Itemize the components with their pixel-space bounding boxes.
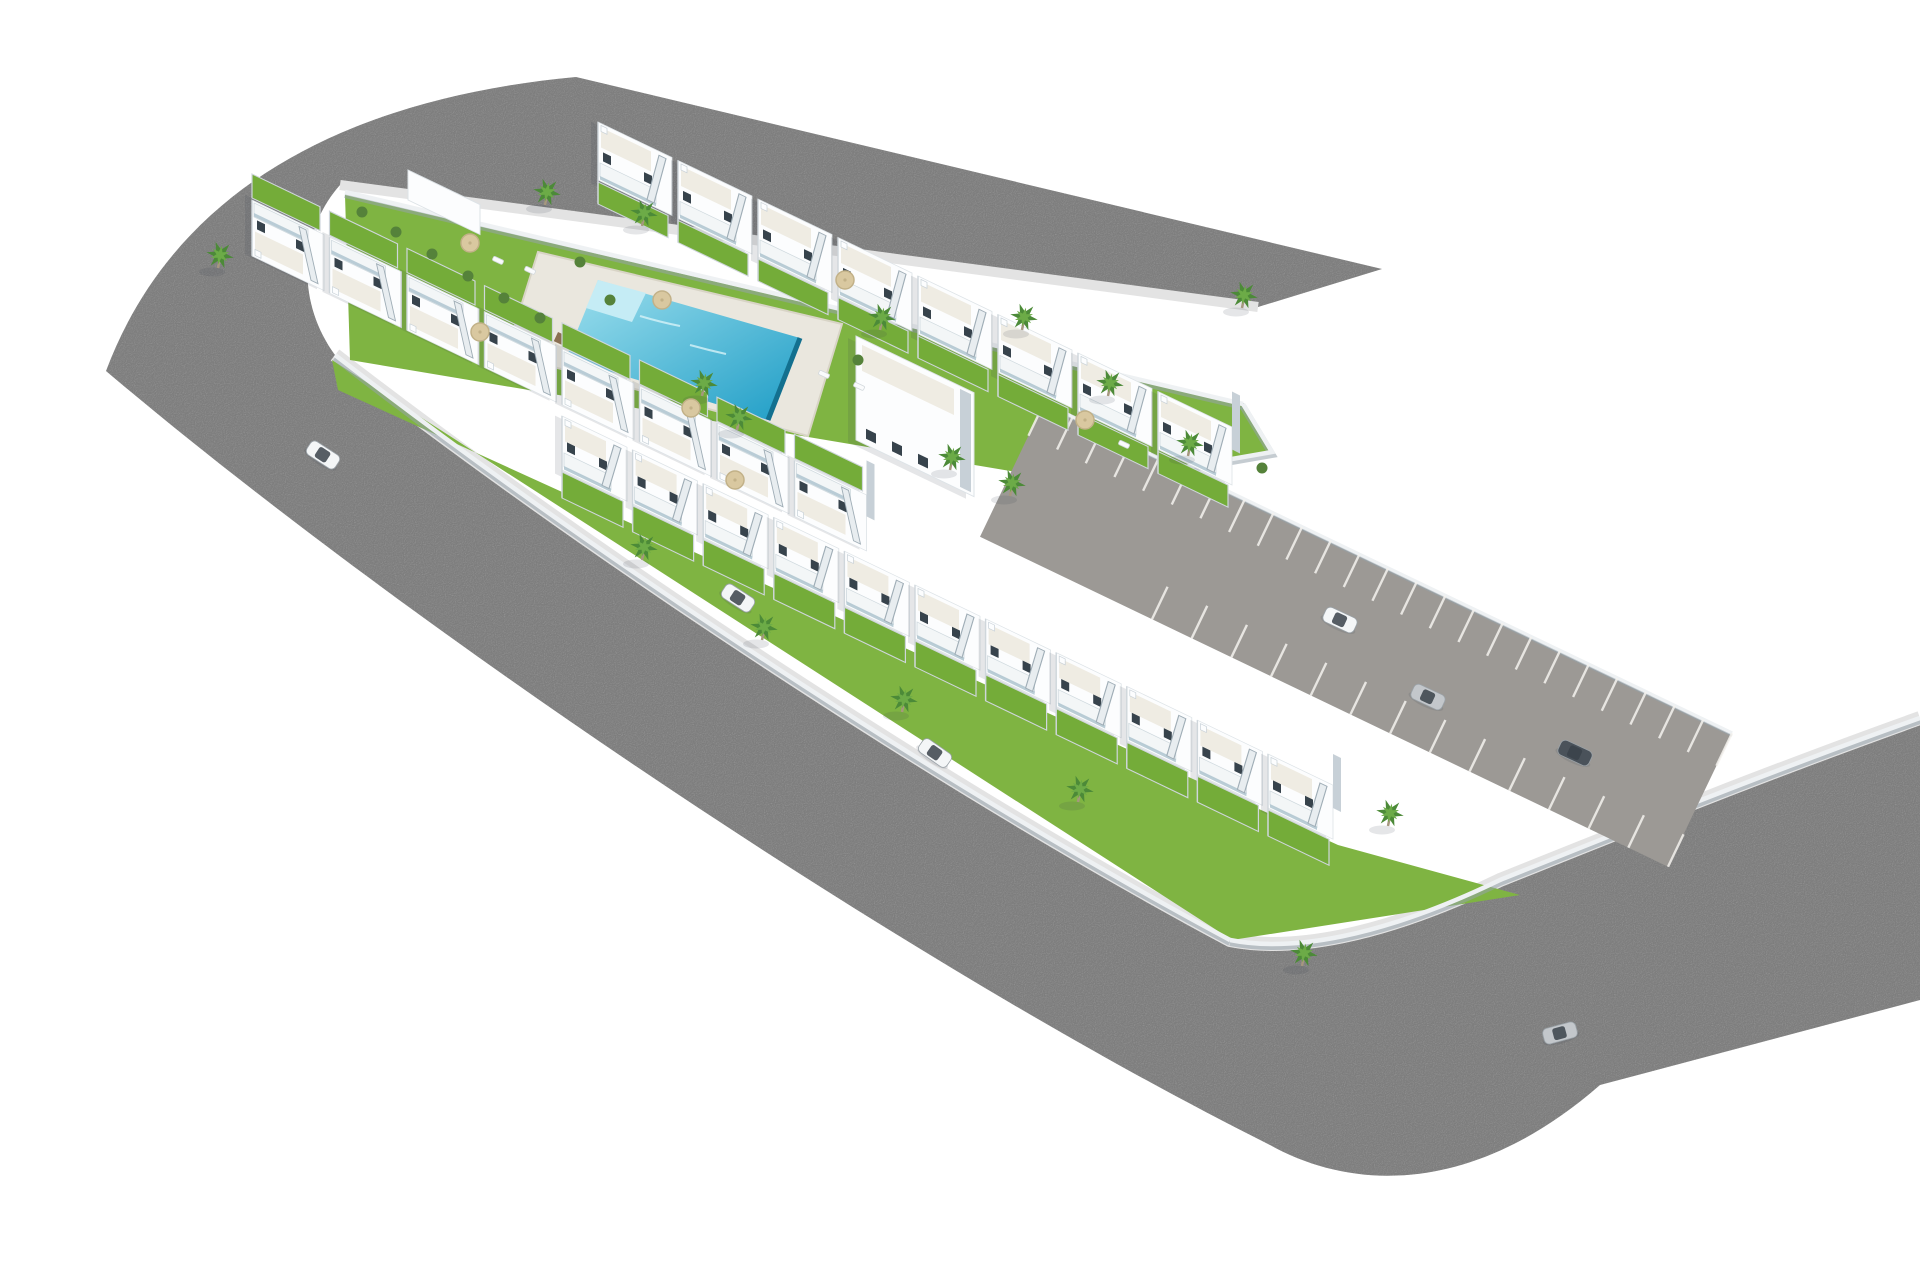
palm-shadow (743, 640, 769, 649)
parasol-pole (689, 406, 692, 409)
bush (427, 249, 438, 260)
palm-shadow (1369, 826, 1395, 835)
palm-shadow (1283, 966, 1309, 975)
palm-shadow (1223, 308, 1249, 317)
render-canvas (0, 0, 1920, 1280)
palm-shadow (623, 560, 649, 569)
row-end-side-wall (1333, 754, 1341, 812)
bush (391, 227, 402, 238)
row-end-side-wall (867, 460, 875, 520)
parasol-pole (843, 278, 846, 281)
straw-parasol (1076, 411, 1094, 429)
palm-shadow (1003, 330, 1029, 339)
bush (535, 313, 546, 324)
row-end-side-wall (1232, 392, 1240, 454)
straw-parasol (653, 291, 671, 309)
bush (463, 271, 474, 282)
straw-parasol (836, 271, 854, 289)
palm-tree (1369, 800, 1404, 835)
straw-parasol (471, 323, 489, 341)
parasol-pole (733, 478, 736, 481)
bush (853, 355, 864, 366)
palm-shadow (861, 330, 887, 339)
palm-shadow (1169, 456, 1195, 465)
straw-parasol (461, 234, 479, 252)
block-side-wall (960, 389, 971, 492)
palm-shadow (199, 268, 225, 277)
bush (575, 257, 586, 268)
parasol-pole (468, 241, 471, 244)
palm-shadow (991, 496, 1017, 505)
palm-shadow (931, 470, 957, 479)
palm-shadow (526, 205, 552, 214)
parasol-pole (478, 330, 481, 333)
bush (605, 295, 616, 306)
palm-shadow (1089, 396, 1115, 405)
bush (499, 293, 510, 304)
straw-parasol (682, 399, 700, 417)
palm-shadow (718, 430, 744, 439)
bush (1257, 463, 1268, 474)
parasol-pole (1083, 418, 1086, 421)
parasol-pole (660, 298, 663, 301)
palm-shadow (883, 712, 909, 721)
bush (357, 207, 368, 218)
palm-shadow (623, 226, 649, 235)
straw-parasol (726, 471, 744, 489)
palm-shadow (1059, 802, 1085, 811)
site-aerial-render (0, 0, 1920, 1280)
